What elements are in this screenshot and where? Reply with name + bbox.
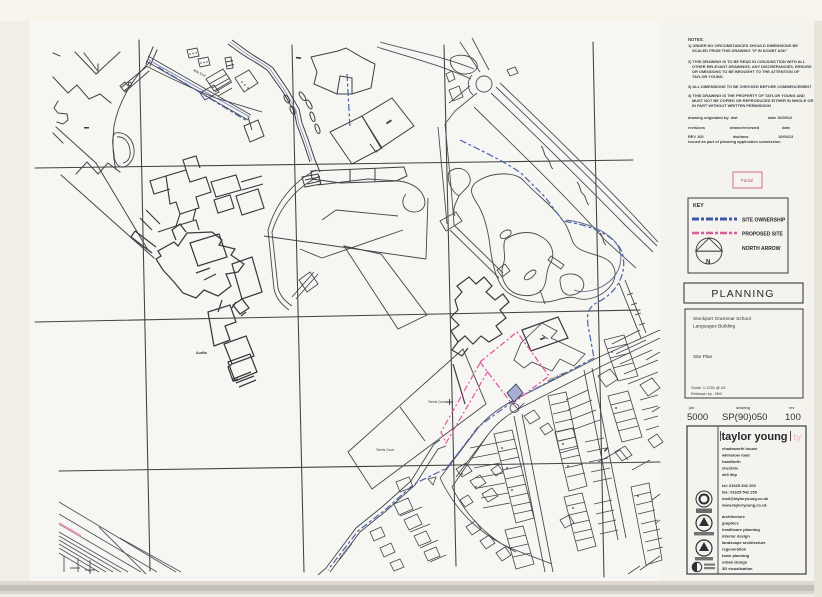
svg-text:drawn/reviewed: drawn/reviewed	[730, 125, 760, 130]
svg-text:interior design: interior design	[722, 534, 750, 539]
svg-text:SP(90)050: SP(90)050	[722, 412, 767, 423]
svg-text:ty: ty	[793, 432, 802, 443]
svg-text:architecture: architecture	[722, 514, 746, 519]
svg-text:SITE OWNERSHIP: SITE OWNERSHIP	[742, 218, 786, 224]
svg-text:revisions: revisions	[688, 125, 705, 130]
svg-text:issued as part of planning app: issued as part of planning application s…	[688, 139, 781, 144]
svg-text:sk9 3hp: sk9 3hp	[722, 472, 737, 477]
svg-text:graphics: graphics	[722, 521, 739, 526]
svg-text:taylor young: taylor young	[722, 431, 788, 443]
svg-text:healthcare planning: healthcare planning	[722, 527, 760, 532]
svg-text:town planning: town planning	[722, 553, 750, 558]
svg-text:fax: 01625 542 250: fax: 01625 542 250	[722, 490, 758, 495]
svg-text:Redrawn by : MW: Redrawn by : MW	[691, 391, 722, 396]
svg-text:Languages Building: Languages Building	[693, 324, 735, 330]
svg-text:N: N	[706, 260, 710, 266]
svg-text:landscape architecture: landscape architecture	[722, 540, 766, 545]
svg-text:date: date	[782, 125, 791, 130]
svg-text:NORTH ARROW: NORTH ARROW	[742, 246, 781, 252]
svg-text:regeneration: regeneration	[722, 547, 747, 552]
svg-text:Site Plan: Site Plan	[693, 354, 713, 360]
svg-text:urban design: urban design	[722, 560, 748, 565]
svg-text:Scale: 1:1250 @ A3: Scale: 1:1250 @ A3	[691, 385, 725, 390]
svg-text:Stockport Grammar School: Stockport Grammar School	[693, 316, 751, 322]
svg-text:mail@tayloryoung.co.uk: mail@tayloryoung.co.uk	[722, 496, 769, 501]
svg-text:PROPOSED SITE: PROPOSED SITE	[742, 232, 784, 238]
svg-text:SCALED FROM THIS DRAWING "IF I: SCALED FROM THIS DRAWING "IF IN DOUBT AS…	[692, 48, 788, 53]
svg-text:www.tayloryoung.co.uk: www.tayloryoung.co.uk	[721, 503, 768, 508]
svg-text:5000: 5000	[687, 412, 708, 423]
svg-text:cheshire: cheshire	[722, 466, 739, 471]
svg-text:date 10/09/12: date 10/09/12	[768, 115, 793, 120]
svg-text:chadsworth house: chadsworth house	[722, 446, 758, 451]
svg-text:Audlin: Audlin	[196, 351, 207, 355]
svg-text:drawing: drawing	[736, 405, 750, 410]
svg-text:PLANNING: PLANNING	[711, 288, 774, 300]
svg-text:drawing originated by: dwt: drawing originated by: dwt	[688, 115, 738, 120]
svg-text:IN PART WITHOUT WRITTEN PERMIS: IN PART WITHOUT WRITTEN PERMISSION	[692, 103, 771, 108]
svg-text:tel: 01625 542 200: tel: 01625 542 200	[722, 483, 757, 488]
svg-text:NOTES:: NOTES:	[688, 37, 704, 42]
svg-text:100: 100	[785, 412, 801, 423]
svg-text:wilmslow road: wilmslow road	[721, 453, 750, 458]
svg-text:job: job	[688, 405, 695, 410]
svg-text:Partial: Partial	[741, 178, 753, 183]
svg-text:TAYLOR YOUNG.: TAYLOR YOUNG.	[692, 74, 724, 79]
svg-text:rev: rev	[789, 405, 795, 410]
svg-text:Tennis Court: Tennis Court	[428, 400, 446, 404]
svg-text:3D visualisation: 3D visualisation	[722, 566, 753, 571]
svg-text:KEY: KEY	[693, 203, 704, 209]
svg-text:Tennis Court: Tennis Court	[376, 448, 394, 452]
svg-text:3) ALL DIMENSIONS TO BE CHECKE: 3) ALL DIMENSIONS TO BE CHECKED BEFORE C…	[688, 84, 812, 89]
svg-text:handforth: handforth	[722, 459, 741, 464]
